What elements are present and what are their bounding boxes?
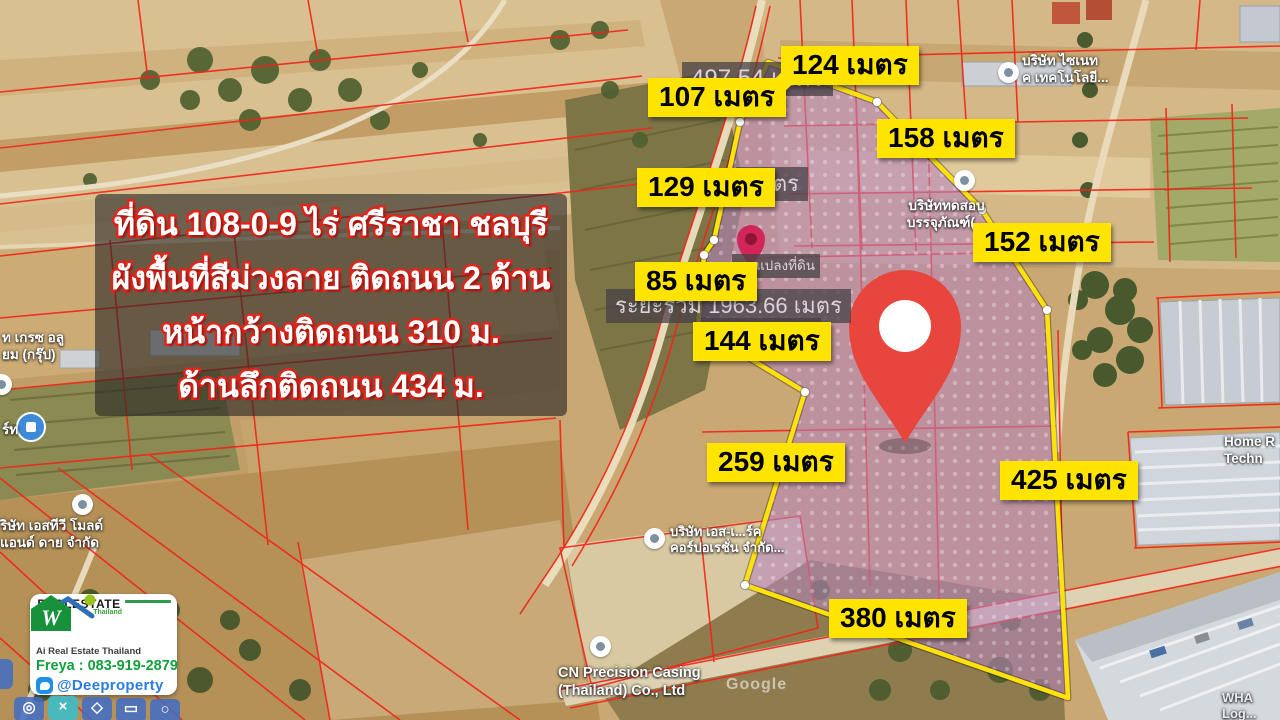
target-tool-button[interactable]: ◎ [14,697,44,720]
measurement-label: 85 เมตร [635,262,757,301]
rectangle-icon: ▭ [124,698,138,720]
circle-tool-button[interactable]: ○ [150,699,180,720]
agency-logo-card: REALESTATE Thailand W Ai Real Estate Tha… [30,594,177,695]
polygon-tool-button[interactable]: ◇ [82,697,112,720]
tiny-text-bar [125,600,171,603]
measurement-label: 259 เมตร [707,443,845,482]
measurement-label: 107 เมตร [648,78,786,117]
poi-label: ริษัท เอสทีวี โมลด์แอนด์ ดาย จำกัด [0,518,103,552]
measurement-label: 425 เมตร [1000,461,1138,500]
measurement-label: 144 เมตร [693,322,831,361]
poi-icon[interactable] [954,170,975,191]
measurement-label: 129 เมตร [637,168,775,207]
property-info-box: ที่ดิน 108-0-9 ไร่ ศรีราชา ชลบุรี ผังพื้… [95,194,567,416]
poi-icon[interactable] [72,494,93,515]
measurement-label: 158 เมตร [877,119,1015,158]
measurement-label: 124 เมตร [781,46,919,85]
circle-icon: ○ [160,699,169,720]
poi-icon[interactable] [998,62,1019,83]
poi-label: CN Precision Casing(Thailand) Co., Ltd [558,664,701,700]
map-watermark: Google [726,676,787,694]
cut-icon: × [59,696,68,718]
poi-label: บริษัท ไซเนทค เทคโนโลยี... [1022,53,1109,87]
polygon-icon: ◇ [91,697,103,719]
info-line: ด้านลึกติดถนน 434 ม. [95,359,567,413]
poi-icon[interactable] [590,636,611,657]
poi-icon[interactable] [644,528,665,549]
edge-tool-button[interactable] [0,659,13,689]
poi-label: Home RTechn [1224,434,1275,468]
info-line: ผังพื้นที่สีม่วงลาย ติดถนน 2 ด้าน [95,251,567,305]
poi-label: ร์ท [2,422,18,439]
measurement-label: 152 เมตร [973,223,1111,262]
measurement-label: 380 เมตร [829,599,967,638]
poi-label: WHA Log...1 (formerly... [1222,690,1280,720]
poi-label: ท เกรซ อลูยม (กรุ๊ป) [2,330,64,364]
rectangle-tool-button[interactable]: ▭ [116,698,146,720]
svg-text:W: W [41,605,62,630]
hotel-poi-icon[interactable] [16,412,46,442]
target-icon: ◎ [22,697,35,719]
line-id[interactable]: @Deeproperty [57,677,164,694]
info-line: ที่ดิน 108-0-9 ไร่ ศรีราชา ชลบุรี [95,197,567,251]
land-listing-map-screenshot: 497.54 เมตร เมตร ผสานแปลงที่ดิน ระยะรวม … [0,0,1280,720]
agency-tagline: Ai Real Estate Thailand [36,646,171,657]
green-house-icon: W [30,594,72,632]
cut-tool-button[interactable]: × [48,696,78,720]
winner-estate-logo: W [125,599,171,603]
poi-label: บริษัท เอส-เ...ร์คคอร์ปอเรชั่น จำกัด... [670,524,784,557]
agent-phone[interactable]: Freya : 083-919-2879 [36,657,171,676]
line-chat-icon [36,677,53,694]
info-line: หน้ากว้างติดถนน 310 ม. [95,305,567,359]
